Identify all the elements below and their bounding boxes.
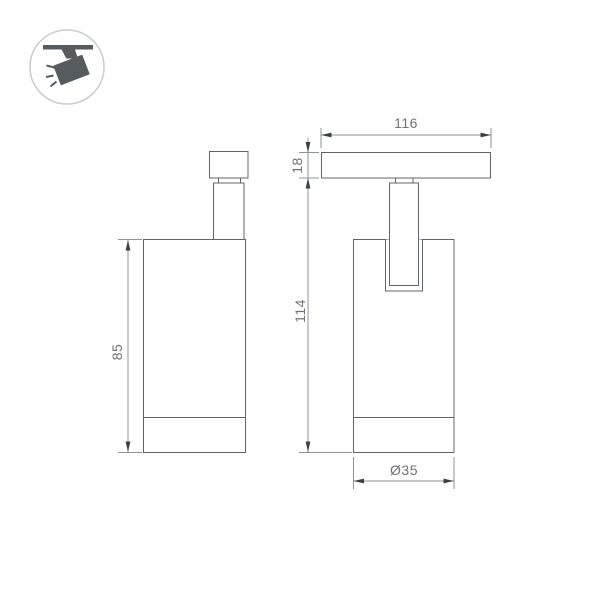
dimension-85: 85 xyxy=(109,240,142,453)
dimension-116: 116 xyxy=(321,115,491,148)
arrowhead-right xyxy=(444,479,455,484)
arrowhead-right xyxy=(481,133,492,138)
side-connector-neck xyxy=(396,178,414,183)
arrowhead-up xyxy=(306,178,311,189)
dim-114-label: 114 xyxy=(292,299,308,323)
dimension-18-114: 18 114 xyxy=(289,138,352,453)
side-view: 116 18 114 Ø35 xyxy=(289,115,491,489)
arrowhead-up xyxy=(126,240,131,251)
arrowhead-left xyxy=(321,133,332,138)
drawing-svg: 85 116 xyxy=(0,0,600,600)
dimension-d35: Ø35 xyxy=(354,457,455,489)
arrowhead-down xyxy=(306,142,311,153)
dim-85-label: 85 xyxy=(109,344,125,361)
front-view: 85 xyxy=(109,152,248,453)
arrowhead-down xyxy=(306,442,311,453)
dim-116-label: 116 xyxy=(394,115,418,131)
dim-d35-label: Ø35 xyxy=(390,462,418,478)
front-body xyxy=(144,240,246,453)
front-track-connector xyxy=(210,152,249,179)
arrowhead-left xyxy=(354,479,365,484)
front-connector-neck xyxy=(219,178,241,183)
dim-18-label: 18 xyxy=(289,157,305,174)
arrowhead-down xyxy=(126,442,131,453)
side-track-bar xyxy=(322,153,491,179)
technical-drawing-canvas: 85 116 xyxy=(0,0,600,600)
side-stem-arm xyxy=(390,183,419,286)
front-stem xyxy=(214,183,245,240)
